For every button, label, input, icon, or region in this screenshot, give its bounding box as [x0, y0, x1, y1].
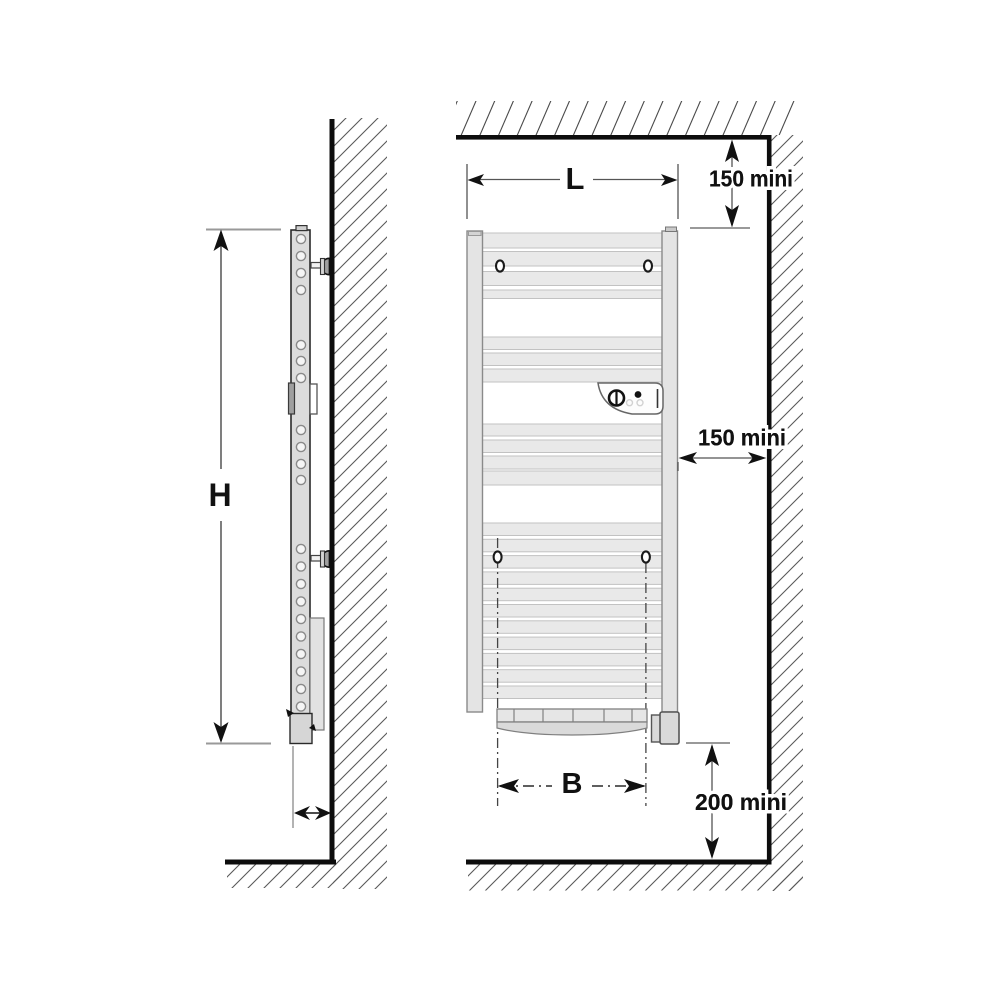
svg-text:B: B — [562, 768, 583, 800]
svg-text:200 mini: 200 mini — [695, 789, 787, 815]
svg-text:150 mini: 150 mini — [698, 425, 786, 451]
svg-text:H: H — [208, 477, 231, 513]
svg-text:150 mini: 150 mini — [709, 166, 793, 192]
svg-text:L: L — [566, 161, 585, 196]
